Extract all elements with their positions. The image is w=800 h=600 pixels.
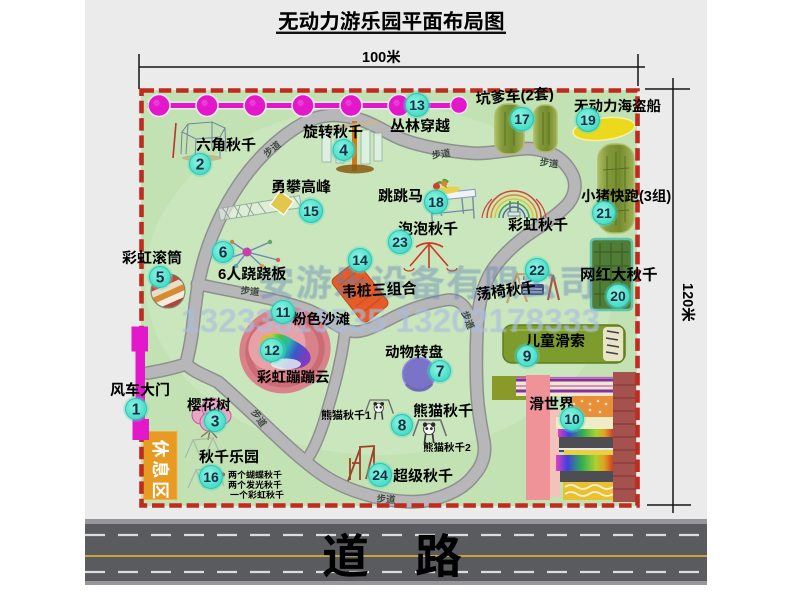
svg-text:1: 1 <box>679 283 695 291</box>
svg-text:0: 0 <box>378 50 386 66</box>
svg-text:24: 24 <box>372 467 388 483</box>
svg-text:0: 0 <box>370 50 378 66</box>
svg-text:22: 22 <box>529 262 545 278</box>
svg-text:3: 3 <box>211 413 220 430</box>
svg-text:4: 4 <box>339 142 348 159</box>
svg-text:23: 23 <box>392 234 408 250</box>
svg-text:17: 17 <box>514 111 530 127</box>
svg-text:5: 5 <box>156 269 165 286</box>
svg-text:13233816535 13202178333: 13233816535 13202178333 <box>181 303 600 340</box>
svg-text:8: 8 <box>398 417 407 434</box>
svg-text:18: 18 <box>428 194 444 210</box>
svg-text:21: 21 <box>596 205 612 221</box>
svg-text:12: 12 <box>264 342 280 358</box>
svg-text:2: 2 <box>679 291 695 299</box>
svg-text:13: 13 <box>409 97 425 113</box>
svg-text:6: 6 <box>218 266 226 283</box>
svg-text:2: 2 <box>465 442 471 454</box>
svg-text:3: 3 <box>644 189 652 205</box>
svg-text:14: 14 <box>352 252 368 268</box>
svg-text:7: 7 <box>436 363 445 380</box>
svg-text:16: 16 <box>203 469 219 485</box>
svg-text:0: 0 <box>679 299 695 307</box>
svg-text:6: 6 <box>219 244 228 261</box>
svg-text:): ) <box>666 189 671 205</box>
svg-text:1: 1 <box>362 50 370 66</box>
svg-text:11: 11 <box>276 304 291 320</box>
svg-text:19: 19 <box>580 112 596 128</box>
svg-text:2: 2 <box>196 156 205 173</box>
svg-text:1: 1 <box>365 410 371 422</box>
svg-text:9: 9 <box>523 348 532 365</box>
svg-text:15: 15 <box>303 203 319 219</box>
svg-text:10: 10 <box>564 411 580 427</box>
svg-text:2: 2 <box>525 87 535 105</box>
svg-text:20: 20 <box>610 288 626 304</box>
svg-text:1: 1 <box>132 401 141 418</box>
